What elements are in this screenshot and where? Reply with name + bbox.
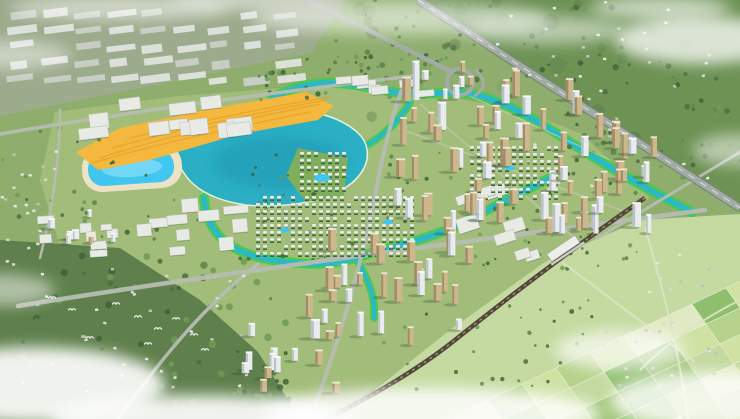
aerial-render <box>0 0 740 419</box>
township-illustration <box>0 0 740 419</box>
